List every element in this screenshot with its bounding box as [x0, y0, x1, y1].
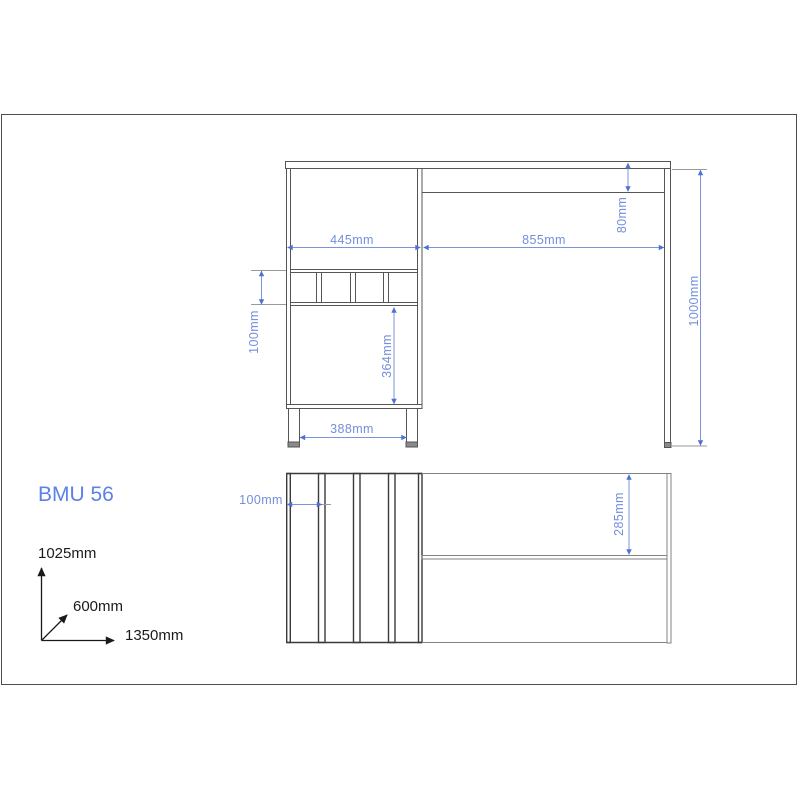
leg-foot — [406, 442, 418, 447]
cubby-divider — [351, 273, 356, 303]
top-view-divider — [389, 474, 396, 643]
top-view-right-edge — [667, 474, 671, 644]
dimension-lines — [251, 163, 707, 555]
dim-label-leg-spacing: 388mm — [330, 422, 374, 436]
axis-label-height: 1025mm — [38, 545, 96, 562]
dim-label-cabinet-width: 445mm — [330, 233, 374, 247]
dim-label-cubby-height: 100mm — [247, 310, 261, 354]
dim-label-overall-height: 1000mm — [687, 275, 701, 326]
cabinet-bottom-panel — [287, 405, 423, 409]
top-view-cabinet — [287, 474, 423, 643]
top-view-worktop — [422, 474, 671, 644]
top-view-rail — [422, 556, 667, 560]
desk-top-panel — [286, 162, 671, 169]
cabinet-leg — [289, 409, 300, 443]
cubby-divider — [384, 273, 389, 303]
axis-depth-arrow — [42, 615, 68, 641]
cabinet-left-panel — [287, 169, 291, 405]
cabinet-right-panel — [418, 169, 423, 405]
technical-drawing — [0, 0, 800, 800]
top-view-divider — [354, 474, 361, 643]
front-view — [286, 162, 672, 448]
leg-foot — [288, 442, 300, 447]
cabinet-leg — [407, 409, 418, 443]
leg-foot — [665, 443, 672, 448]
product-dimension-sheet: BMU 56 445mm 855mm 80mm 1000mm 100mm 364… — [0, 0, 800, 800]
right-leg — [665, 169, 671, 443]
dim-label-door-height: 364mm — [380, 334, 394, 378]
axis-label-width: 1350mm — [125, 627, 183, 644]
dim-label-worktop-depth: 285mm — [612, 492, 626, 536]
model-label: BMU 56 — [38, 483, 114, 507]
dim-label-worktop-width: 855mm — [522, 233, 566, 247]
extension-lines — [251, 170, 707, 505]
top-view-divider — [319, 474, 326, 643]
dim-label-cubby-slot-width: 100mm — [239, 493, 283, 507]
dim-label-apron-height: 80mm — [615, 197, 629, 233]
axis-label-depth: 600mm — [73, 598, 123, 615]
cubby-divider — [317, 273, 322, 303]
